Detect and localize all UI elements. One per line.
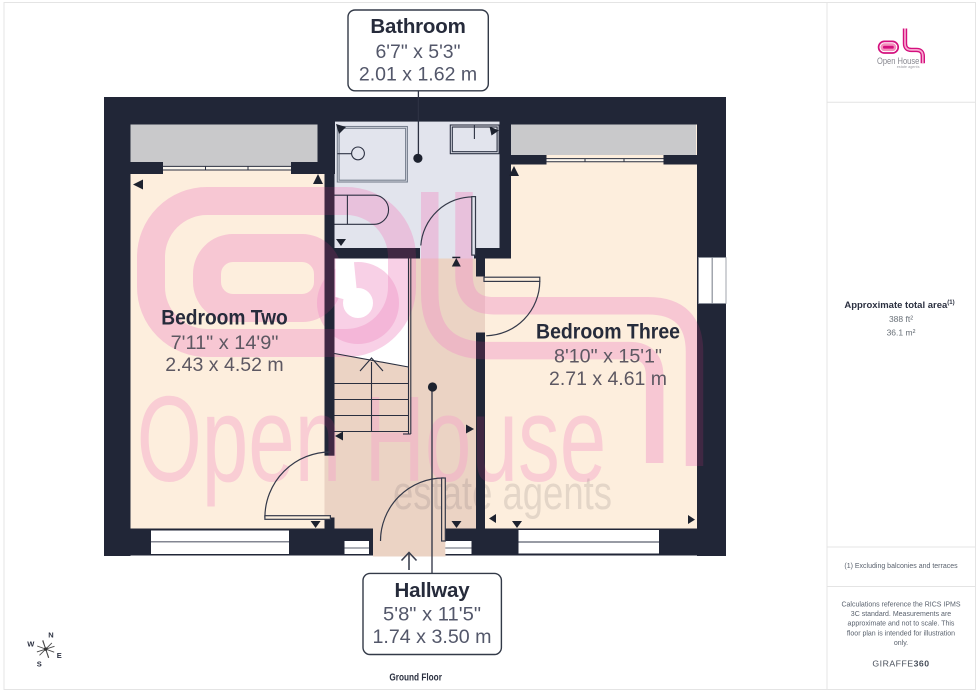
svg-text:1.74 x 3.50 m: 1.74 x 3.50 m: [373, 627, 492, 648]
svg-text:estate agents: estate agents: [393, 466, 612, 519]
svg-text:Approximate total area(1): Approximate total area(1): [844, 300, 954, 311]
svg-text:36.1 m²: 36.1 m²: [887, 328, 916, 338]
svg-text:floor plan is intended for ill: floor plan is intended for illustration: [847, 630, 955, 637]
svg-text:only.: only.: [894, 640, 908, 647]
svg-text:2.01 x 1.62 m: 2.01 x 1.62 m: [359, 65, 477, 86]
svg-text:(1) Excluding balconies and te: (1) Excluding balconies and terraces: [844, 563, 958, 570]
svg-text:Bathroom: Bathroom: [370, 15, 465, 38]
svg-text:2.71 x 4.61 m: 2.71 x 4.61 m: [549, 369, 667, 390]
svg-text:Bedroom Two: Bedroom Two: [161, 306, 288, 329]
svg-text:Calculations reference the RIC: Calculations reference the RICS IPMS: [841, 602, 960, 609]
svg-text:388 ft²: 388 ft²: [889, 314, 913, 324]
svg-text:5'8" x 11'5": 5'8" x 11'5": [383, 605, 481, 626]
svg-text:6'7" x 5'3": 6'7" x 5'3": [376, 42, 461, 63]
svg-text:approximate and not to scale.: approximate and not to scale. This: [848, 621, 955, 628]
svg-text:S: S: [37, 659, 42, 668]
svg-text:GIRAFFE360: GIRAFFE360: [872, 659, 929, 669]
svg-text:2.43 x 4.52 m: 2.43 x 4.52 m: [165, 355, 283, 376]
svg-text:Ground Floor: Ground Floor: [389, 673, 442, 684]
svg-text:Hallway: Hallway: [395, 579, 471, 602]
svg-text:7'11" x 14'9": 7'11" x 14'9": [171, 333, 279, 354]
svg-text:N: N: [48, 631, 53, 640]
svg-text:3C standard. Measurements are: 3C standard. Measurements are: [851, 611, 951, 618]
svg-text:E: E: [57, 651, 62, 660]
svg-text:8'10" x 15'1": 8'10" x 15'1": [554, 346, 662, 367]
svg-text:W: W: [27, 640, 35, 649]
svg-text:Bedroom Three: Bedroom Three: [536, 320, 680, 343]
svg-text:estate agents: estate agents: [897, 65, 920, 69]
